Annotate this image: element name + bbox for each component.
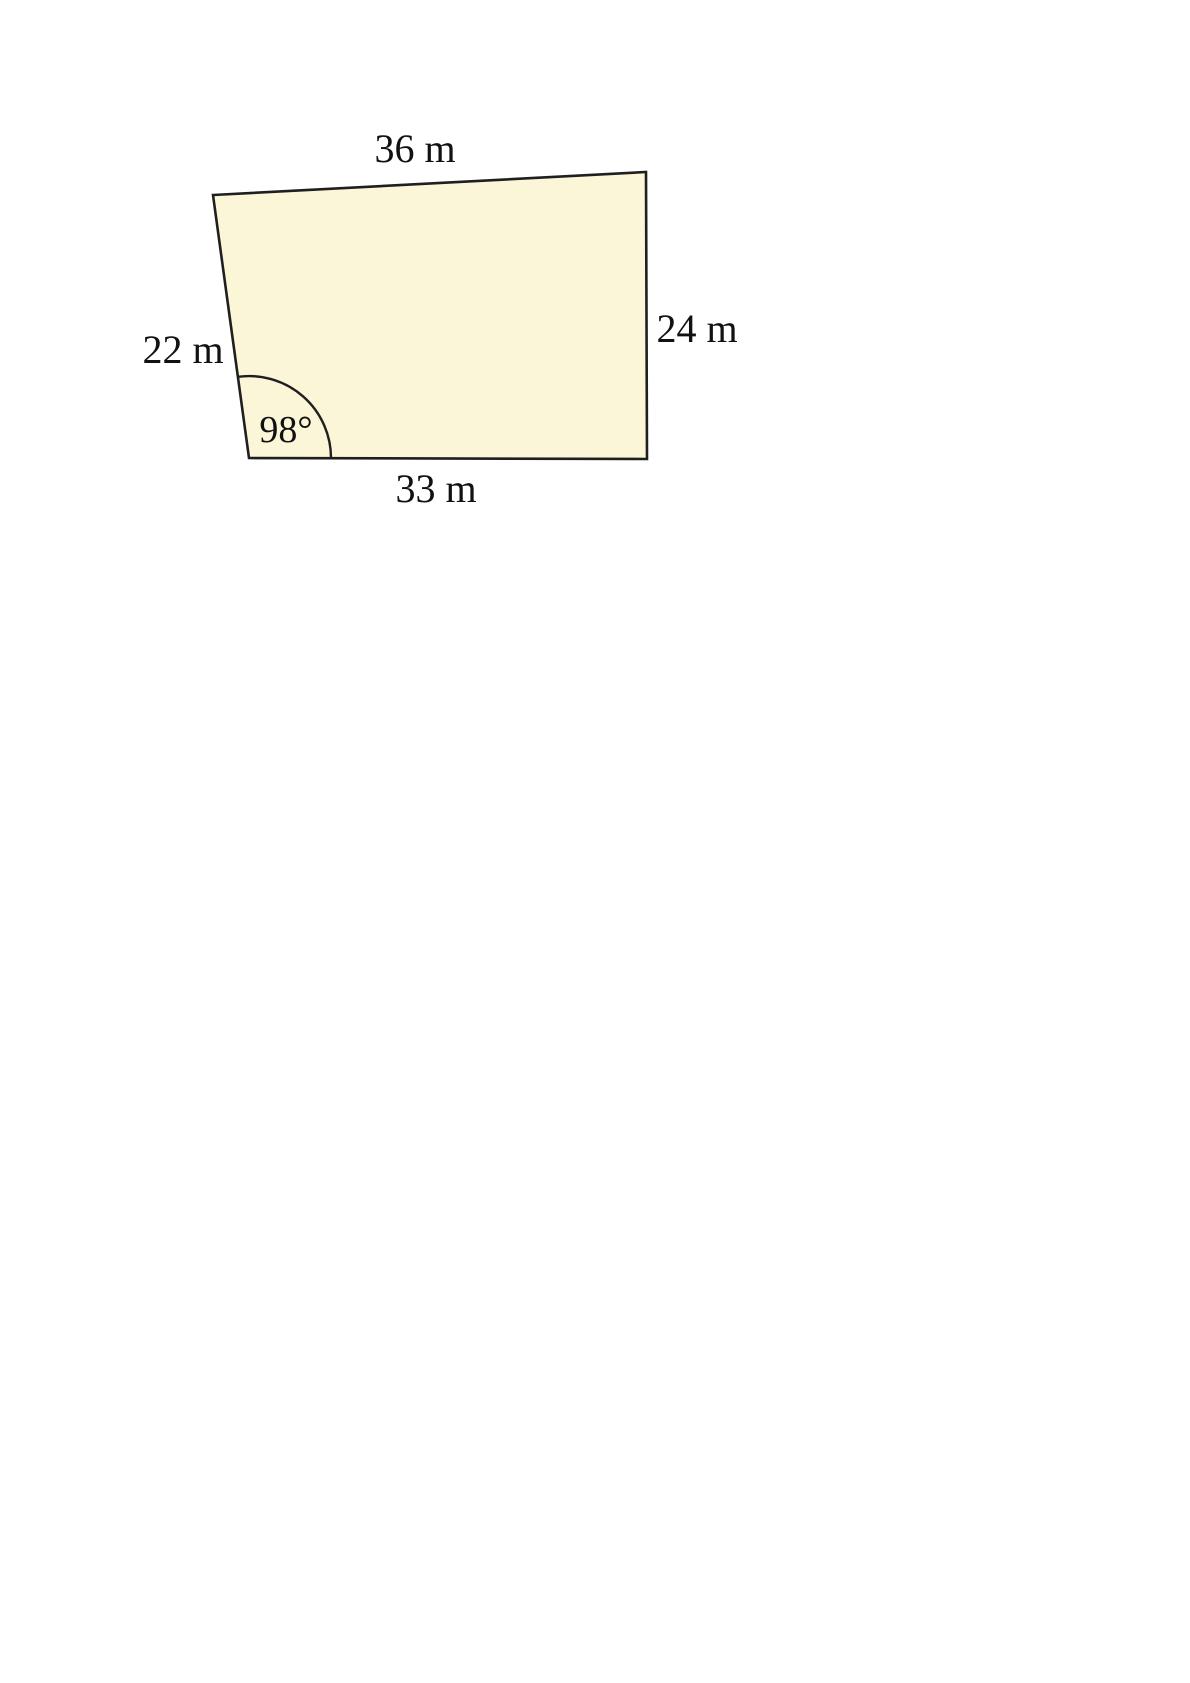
geometry-diagram: 36 m 24 m 33 m 22 m 98° xyxy=(0,0,1190,1683)
page-background: 36 m 24 m 33 m 22 m 98° xyxy=(0,0,1190,1683)
angle-label: 98° xyxy=(259,409,312,451)
side-label-bottom: 33 m xyxy=(395,466,476,511)
side-label-top: 36 m xyxy=(374,126,455,171)
side-label-left: 22 m xyxy=(142,327,223,372)
side-label-right: 24 m xyxy=(656,306,737,351)
